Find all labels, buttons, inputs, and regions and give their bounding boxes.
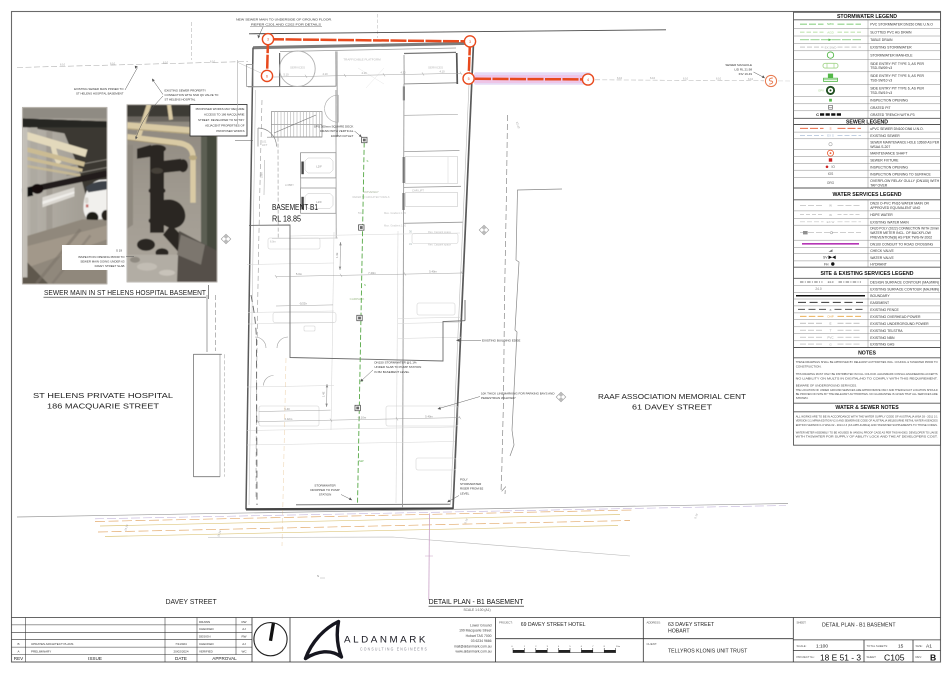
svg-text:CHECK VALVE: CHECK VALVE (870, 249, 894, 253)
svg-text:20/02/2024: 20/02/2024 (173, 649, 188, 653)
svg-text:EXISTING TELSTRA: EXISTING TELSTRA (870, 329, 903, 333)
svg-text:RL 18.85: RL 18.85 (272, 215, 302, 224)
svg-text:CAR LIFT: CAR LIFT (412, 189, 424, 193)
svg-text:7/11/024: 7/11/024 (175, 642, 187, 646)
svg-text:EXISTING OVERHEAD POWER: EXISTING OVERHEAD POWER (870, 315, 921, 319)
svg-text:B: B (17, 642, 19, 646)
svg-text:DESIGN SURFACE CONTOUR (MAJ/MI: DESIGN SURFACE CONTOUR (MAJ/MIN) (870, 281, 939, 285)
svg-text:DN150 STORMWATER @1.1%: DN150 STORMWATER @1.1% (374, 361, 416, 365)
svg-text:INSPECTION OPENING: INSPECTION OPENING (870, 165, 908, 169)
svg-text:6.10: 6.10 (716, 77, 722, 81)
svg-text:1:100: 1:100 (816, 644, 828, 650)
svg-text:RW: RW (242, 620, 247, 624)
svg-text:Hobart TAS 7000: Hobart TAS 7000 (466, 634, 492, 638)
svg-text:EXISTING FENCE: EXISTING FENCE (870, 308, 899, 312)
svg-text:S 19: S 19 (116, 249, 122, 253)
svg-text:CHECKED: CHECKED (199, 642, 215, 646)
svg-text:SEWER MAINTENANCE HOLE 1050Ø A: SEWER MAINTENANCE HOLE 1050Ø AS PER (870, 140, 939, 144)
svg-text:WITH TASWATER FOR SUPPLY OF AB: WITH TASWATER FOR SUPPLY OF ABILITY LOCK… (796, 435, 938, 439)
svg-text:LIFT: LIFT (262, 143, 268, 147)
svg-text:EASEMENT: EASEMENT (870, 301, 890, 305)
svg-text:SCALE 1:100 (A1): SCALE 1:100 (A1) (463, 608, 490, 612)
svg-text:63 DAVEY STREET: 63 DAVEY STREET (668, 622, 715, 628)
svg-text:SERVICES: SERVICES (290, 66, 305, 70)
svg-text:IOS: IOS (828, 172, 834, 176)
svg-text:5.40m: 5.40m (425, 414, 433, 418)
svg-text:EX W: EX W (827, 220, 835, 224)
svg-text:199 Macquarie Street: 199 Macquarie Street (459, 629, 491, 633)
svg-text:LOBBY: LOBBY (285, 183, 294, 187)
svg-text:ORG: ORG (827, 181, 835, 185)
svg-text:TABLE DRAIN: TABLE DRAIN (870, 38, 893, 42)
svg-text:EXISTING GAS: EXISTING GAS (870, 343, 895, 347)
svg-text:EXISTING SEWER MAIN PINNED TO: EXISTING SEWER MAIN PINNED TO (74, 87, 124, 91)
svg-text:ST HELENS HOSPITAL: ST HELENS HOSPITAL (165, 98, 196, 102)
svg-text:6.0m: 6.0m (270, 240, 276, 244)
svg-text:SW: SW (359, 459, 364, 463)
svg-text:S: S (829, 127, 831, 131)
svg-text:24.0: 24.0 (828, 280, 834, 284)
svg-text:SCALE:: SCALE: (797, 644, 807, 648)
svg-text:03 6234 9666: 03 6234 9666 (471, 639, 492, 643)
svg-text:CHECKED: CHECKED (199, 627, 215, 631)
svg-text:LEVEL: LEVEL (460, 491, 470, 495)
svg-text:24.0: 24.0 (815, 287, 821, 291)
svg-text:DRAIN WITH VERTICAL: DRAIN WITH VERTICAL (320, 129, 354, 133)
svg-text:OHP: OHP (827, 315, 834, 319)
svg-text:STORMWATER LEGEND: STORMWATER LEGEND (837, 14, 897, 20)
svg-text:EX SWD: EX SWD (825, 45, 838, 49)
svg-text:-0.10m: -0.10m (358, 416, 367, 420)
svg-text:S: S (367, 159, 369, 163)
svg-text:HYDRANT: HYDRANT (870, 263, 888, 267)
svg-text:1.4E: 1.4E (322, 391, 326, 397)
svg-text:EXISTING SURFACE CONTOUR (MAJ/: EXISTING SURFACE CONTOUR (MAJ/MIN) (870, 288, 939, 292)
svg-text:SEWER MANHOLE: SEWER MANHOLE (725, 63, 752, 67)
svg-text:DETAIL PLAN - B1 BASEMENT: DETAIL PLAN - B1 BASEMENT (429, 597, 524, 606)
svg-text:PVC STORMWATER DN150 DNE U.N.O: PVC STORMWATER DN150 DNE U.N.O (870, 23, 933, 27)
svg-text:SLOTTED PVC AG DRAIN: SLOTTED PVC AG DRAIN (870, 31, 912, 35)
svg-text:GPV: GPV (818, 89, 824, 93)
svg-text:18 E 51 - 3: 18 E 51 - 3 (820, 653, 861, 662)
svg-text:CONSTRUCTION.: CONSTRUCTION. (796, 364, 822, 368)
svg-text:TSD-SW19 v3: TSD-SW19 v3 (870, 91, 892, 95)
svg-text:PROJECT:: PROJECT: (499, 621, 513, 625)
svg-text:REV: REV (14, 656, 24, 661)
svg-text:DAVEY STREET SLAB: DAVEY STREET SLAB (95, 264, 125, 268)
svg-text:INSPECTION OPENING: INSPECTION OPENING (870, 99, 908, 103)
svg-text:0.42m: 0.42m (285, 417, 293, 421)
svg-text:EXISTING BUILDING EDGE: EXISTING BUILDING EDGE (482, 339, 520, 343)
svg-text:INSPECTION OPENING TO SURFACE: INSPECTION OPENING TO SURFACE (870, 172, 931, 176)
svg-text:T: T (830, 328, 832, 332)
svg-text:Lower Ground: Lower Ground (470, 624, 492, 628)
svg-text:WATER SERVICES LEGEND: WATER SERVICES LEGEND (833, 192, 902, 198)
svg-text:5: 5 (468, 77, 470, 81)
svg-text:WSAA S-207: WSAA S-207 (870, 145, 890, 149)
svg-text:NEW SEWER MAIN TO UNDERSIDE OF: NEW SEWER MAIN TO UNDERSIDE OF GROUND FL… (236, 18, 332, 22)
svg-text:FH: FH (824, 262, 829, 266)
svg-text:RISER FROM B2: RISER FROM B2 (460, 487, 484, 491)
svg-text:VERIFIED: VERIFIED (199, 649, 214, 653)
svg-text:OVERFLOW RELAY GULLY (DN100) W: OVERFLOW RELAY GULLY (DN100) WITH (870, 179, 940, 183)
svg-text:LID RL 21.98: LID RL 21.98 (734, 68, 752, 72)
svg-text:6.10: 6.10 (60, 63, 66, 67)
svg-text:6.10: 6.10 (748, 77, 754, 81)
svg-text:EXISTING SEWER: EXISTING SEWER (870, 134, 900, 138)
svg-text:PREVENTION(B) AS PER TWS-W-200: PREVENTION(B) AS PER TWS-W-2002 (870, 236, 932, 240)
svg-text:DRAWN: DRAWN (199, 620, 210, 624)
svg-text:CONNECTION WITH NSR QK VALVE T: CONNECTION WITH NSR QK VALVE TO (165, 93, 220, 97)
svg-text:AJ: AJ (242, 642, 246, 646)
svg-text:Res. Carpark space: Res. Carpark space (428, 243, 451, 247)
svg-text:SIDE ENTRY PIT TYPE 3, AS PER: SIDE ENTRY PIT TYPE 3, AS PER (870, 62, 924, 66)
svg-text:ST HELENS HOSPITAL BASEMENT: ST HELENS HOSPITAL BASEMENT (76, 92, 124, 96)
svg-text:1.4E: 1.4E (335, 252, 339, 258)
svg-text:HDPE WATER: HDPE WATER (870, 213, 893, 217)
svg-text:C: C (816, 112, 819, 117)
svg-text:DN20 O-PVC PN16 WATER MAIN OR: DN20 O-PVC PN16 WATER MAIN OR (870, 202, 929, 206)
svg-text:DETAIL PLAN - B1 BASEMENT: DETAIL PLAN - B1 BASEMENT (822, 623, 896, 629)
svg-text:SEWER MAIN IN ST HELENS HOSPIT: SEWER MAIN IN ST HELENS HOSPITAL BASEMEN… (44, 288, 206, 297)
svg-text:ADJACENT PROPERTIES OF: ADJACENT PROPERTIES OF (205, 124, 245, 128)
svg-text:S: S (364, 283, 366, 287)
svg-text:IO: IO (832, 165, 836, 169)
svg-text:S: S (317, 574, 319, 578)
svg-text:RW: RW (242, 635, 247, 639)
svg-text:AGD: AGD (827, 30, 834, 34)
svg-text:WATER & SEWER NOTES: WATER & SEWER NOTES (835, 405, 899, 411)
svg-text:PVC: PVC (827, 335, 834, 339)
svg-text:TSD-SW10 v3: TSD-SW10 v3 (870, 79, 892, 83)
svg-text:EXISTING NBN: EXISTING NBN (870, 336, 895, 340)
svg-text:EXISTING WATER MAIN: EXISTING WATER MAIN (870, 220, 909, 224)
svg-text:CARPARK: CARPARK (350, 297, 366, 301)
svg-text:BASEMENT B1: BASEMENT B1 (272, 203, 318, 212)
svg-text:5.0m: 5.0m (296, 272, 303, 276)
svg-text:EXISTING STORMWATER: EXISTING STORMWATER (870, 46, 912, 50)
svg-text:SWC: SWC (827, 22, 835, 26)
svg-text:PRELIMINARY: PRELIMINARY (31, 649, 51, 653)
svg-text:SIDE ENTRY PIT TYPE 6, AS PER: SIDE ENTRY PIT TYPE 6, AS PER (870, 87, 924, 91)
svg-text:6.10: 6.10 (617, 76, 623, 80)
svg-text:BE PROVEN ON SITE BY THE RELEV: BE PROVEN ON SITE BY THE RELEVANT AUTHOR… (796, 392, 938, 396)
svg-text:DESIGN: DESIGN (199, 635, 211, 639)
svg-text:DN20 POLY (2022) CONNECTION WI: DN20 POLY (2022) CONNECTION WITH 20mm (870, 227, 939, 231)
svg-text:HOBART: HOBART (668, 629, 690, 635)
svg-text:DATE: DATE (175, 656, 187, 661)
svg-text:TRAFFICABLE PLATFORM: TRAFFICABLE PLATFORM (343, 58, 381, 62)
svg-text:6.10: 6.10 (210, 60, 216, 64)
svg-text:STORMWATER MANHOLE: STORMWATER MANHOLE (870, 54, 913, 58)
svg-text:SERVICES: SERVICES (428, 65, 443, 69)
svg-text:ADDRESS:: ADDRESS: (647, 621, 662, 625)
svg-text:SV: SV (823, 256, 828, 260)
svg-text:E: E (829, 321, 831, 325)
svg-text:INV 19.49: INV 19.49 (739, 72, 753, 76)
svg-text:TOTAL SHEETS:: TOTAL SHEETS: (867, 644, 889, 648)
svg-text:REFER TO ARCHITECTURALS: REFER TO ARCHITECTURALS (352, 195, 389, 199)
svg-text:WATER VALVE: WATER VALVE (870, 256, 894, 260)
svg-text:SHOWN.: SHOWN. (796, 396, 809, 400)
svg-text:APPROVED EQUIVALENT UNO: APPROVED EQUIVALENT UNO (870, 206, 920, 210)
svg-text:L01: L01 (262, 140, 267, 144)
svg-text:APPROVAL: APPROVAL (212, 656, 237, 661)
svg-text:A: A (17, 649, 19, 653)
svg-text:EDITION VERSION 1.0 WSA 02 - 2: EDITION VERSION 1.0 WSA 02 - 2014 2.3 (A… (796, 423, 938, 427)
svg-text:6.10: 6.10 (110, 62, 116, 66)
svg-text:100MM OUTLET: 100MM OUTLET (331, 134, 354, 138)
svg-text:DROPPER TO PUMP: DROPPER TO PUMP (310, 488, 339, 492)
svg-text:4.10: 4.10 (439, 70, 445, 74)
svg-text:7.40m: 7.40m (368, 271, 376, 275)
svg-text:MAINTENANCE SHAFT: MAINTENANCE SHAFT (870, 152, 908, 156)
svg-text:4: 4 (587, 78, 589, 82)
svg-text:ST HELENS PRIVATE HOSPITAL: ST HELENS PRIVATE HOSPITAL (33, 391, 173, 400)
svg-text:5.10: 5.10 (283, 73, 289, 77)
svg-text:SIZE:: SIZE: (916, 644, 923, 648)
svg-text:6: 6 (266, 74, 268, 78)
svg-text:ACCESS TO 186 MACQUARIE: ACCESS TO 186 MACQUARIE (204, 113, 245, 117)
svg-text:3: 3 (267, 38, 269, 42)
svg-text:CLIENT:: CLIENT: (647, 642, 658, 646)
svg-text:3.6m: 3.6m (260, 172, 264, 178)
svg-text:IN B2 BASEMENT LEVEL: IN B2 BASEMENT LEVEL (374, 370, 409, 374)
svg-text:WC: WC (242, 649, 248, 653)
svg-text:W: W (829, 213, 832, 217)
svg-text:DN100 CONDUIT TO ROAD CROSSING: DN100 CONDUIT TO ROAD CROSSING (870, 242, 933, 246)
svg-text:TAP OVER: TAP OVER (870, 183, 888, 187)
svg-text:PROJECT No:: PROJECT No: (797, 655, 815, 659)
svg-text:REV:: REV: (916, 655, 923, 659)
svg-text:uPVC SEWER DN100 DN6 U.N.O.: uPVC SEWER DN100 DN6 U.N.O. (870, 127, 924, 131)
svg-text:15: 15 (898, 644, 904, 650)
svg-text:GRATED PIT: GRATED PIT (870, 106, 891, 110)
svg-text:A1: A1 (926, 644, 932, 650)
svg-text:SITE & EXISTING SERVICES LEGEN: SITE & EXISTING SERVICES LEGEND (820, 271, 913, 277)
svg-text:STATION: STATION (319, 493, 332, 497)
svg-text:GRATED TRENCH W/TH-P3: GRATED TRENCH W/TH-P3 (870, 113, 914, 117)
svg-text:CONSULTING ENGINEERS: CONSULTING ENGINEERS (360, 647, 428, 652)
svg-text:ALDANMARK: ALDANMARK (344, 635, 428, 646)
svg-text:EXISTING SEWER PROPERTY: EXISTING SEWER PROPERTY (165, 89, 207, 93)
svg-text:EX S: EX S (827, 134, 834, 138)
svg-text:TSD-SW09 v3: TSD-SW09 v3 (870, 66, 892, 70)
svg-text:DAVEY STREET: DAVEY STREET (166, 597, 217, 606)
svg-text:10m: 10m (616, 646, 620, 648)
svg-text:PROPOSED WORKS: PROPOSED WORKS (216, 129, 244, 133)
svg-text:mail@aldanmark.com.au: mail@aldanmark.com.au (454, 644, 492, 648)
svg-text:AJ: AJ (242, 627, 246, 631)
svg-text:186 MACQUARIE STREET: 186 MACQUARIE STREET (47, 402, 160, 411)
svg-text:UPDATES ARCHITECT PLANS: UPDATES ARCHITECT PLANS (31, 642, 73, 646)
svg-text:ISSUE: ISSUE (88, 656, 102, 661)
svg-text:SPS 300mm SQUARE DECK: SPS 300mm SQUARE DECK (314, 125, 354, 129)
svg-text:SIDE ENTRY PIT TYPE 5, AS PER: SIDE ENTRY PIT TYPE 5, AS PER (870, 74, 924, 78)
svg-text:PEDESTRIAN WALKWAY: PEDESTRIAN WALKWAY (481, 396, 516, 400)
svg-text:5.40m: 5.40m (429, 270, 437, 274)
svg-text:NOTES: NOTES (858, 351, 876, 357)
svg-text:L2/F: L2/F (316, 165, 322, 169)
svg-text:C105: C105 (884, 652, 905, 662)
svg-text:6.10: 6.10 (683, 76, 689, 80)
svg-text:×: × (829, 308, 831, 312)
svg-text:B: B (930, 652, 936, 662)
svg-text:W: W (829, 204, 832, 208)
svg-text:SEWER LEGEND: SEWER LEGEND (846, 119, 888, 125)
svg-text:SHEET:: SHEET: (867, 655, 877, 659)
svg-text:NO LIABILITY ON MULTS IN DIGIT: NO LIABILITY ON MULTS IN DIGITAL/HD TO C… (796, 376, 938, 380)
svg-text:TELLYROS KLONIS UNIT TRUST: TELLYROS KLONIS UNIT TRUST (668, 649, 748, 655)
svg-text:DRIVEWAY: DRIVEWAY (363, 190, 379, 194)
svg-text:-5/2Dr: -5/2Dr (299, 302, 307, 306)
svg-text:3: 3 (469, 40, 471, 44)
svg-text:STORMWATER: STORMWATER (314, 484, 336, 488)
svg-text:www.aldanmark.com.au: www.aldanmark.com.au (456, 650, 492, 654)
svg-text:POLY: POLY (460, 478, 468, 482)
svg-text:SEWER MAIN GOING UNDER 63: SEWER MAIN GOING UNDER 63 (80, 260, 125, 264)
svg-text:4.10: 4.10 (322, 72, 328, 76)
svg-text:SHEET:: SHEET: (797, 621, 807, 625)
svg-text:4.10: 4.10 (361, 71, 367, 75)
svg-text:EXISTING UNDERGROUND POWER: EXISTING UNDERGROUND POWER (870, 322, 929, 326)
svg-text:69 DAVEY STREET HOTEL: 69 DAVEY STREET HOTEL (521, 622, 586, 628)
svg-text:REFER C201 AND C202 FOR DETAIL: REFER C201 AND C202 FOR DETAILS (251, 23, 321, 27)
svg-text:UNDER SLAB TO PUMP STATION: UNDER SLAB TO PUMP STATION (374, 365, 421, 369)
svg-text:6.10: 6.10 (650, 76, 656, 80)
svg-text:6.10: 6.10 (163, 61, 169, 65)
svg-text:WATER METER INCL. OF BACKFLOW: WATER METER INCL. OF BACKFLOW (870, 231, 931, 235)
svg-text:INSPECTION OPENING PRIOR TO: INSPECTION OPENING PRIOR TO (78, 255, 125, 259)
svg-text:10K THICK LINEMARKING FOR PARK: 10K THICK LINEMARKING FOR PARKING BAYS A… (481, 392, 555, 396)
svg-text:STORMWATER: STORMWATER (460, 482, 482, 486)
svg-text:4.10: 4.10 (400, 70, 406, 74)
svg-text:RAAF ASSOCIATION MEMORIAL CENT: RAAF ASSOCIATION MEMORIAL CENT (598, 392, 747, 401)
svg-text:61 DAVEY STREET: 61 DAVEY STREET (632, 403, 713, 412)
svg-text:SEWER FIXTURE: SEWER FIXTURE (870, 159, 899, 163)
svg-text:BOUNDARY: BOUNDARY (870, 294, 890, 298)
